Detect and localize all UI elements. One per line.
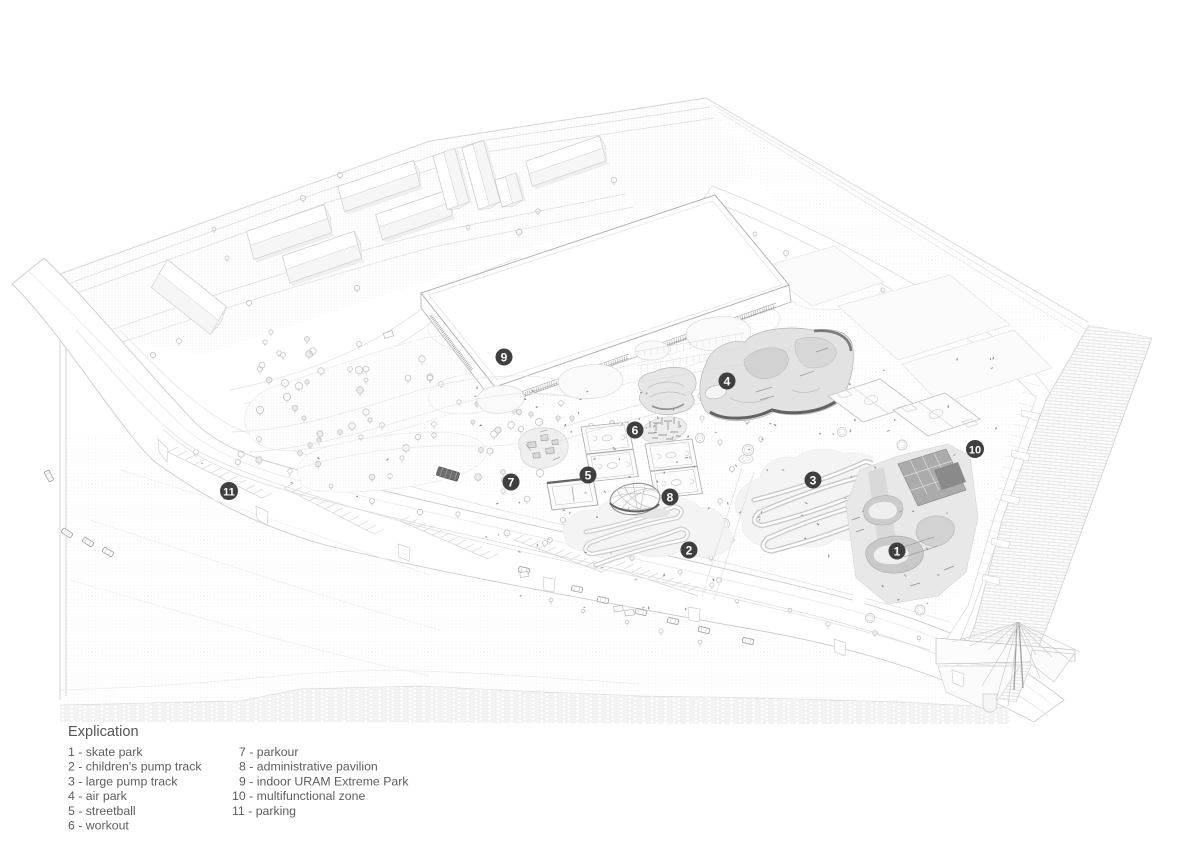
svg-text:7 - parkour: 7 - parkour [239, 745, 298, 759]
svg-text:4 - air park: 4 - air park [68, 789, 128, 803]
svg-text:5: 5 [585, 469, 592, 483]
svg-text:4: 4 [724, 375, 731, 389]
svg-text:7: 7 [508, 476, 515, 490]
svg-text:2: 2 [686, 544, 693, 558]
svg-text:11: 11 [223, 487, 235, 499]
svg-text:10 - multifunctional zone: 10 - multifunctional zone [232, 789, 365, 803]
svg-text:9: 9 [501, 351, 508, 365]
svg-text:9 - indoor URAM Extreme Park: 9 - indoor URAM Extreme Park [239, 774, 409, 788]
svg-text:3: 3 [810, 474, 817, 488]
svg-text:1: 1 [894, 545, 901, 559]
svg-text:1 - skate park: 1 - skate park [68, 745, 143, 759]
svg-text:5 - streetball: 5 - streetball [68, 804, 136, 818]
svg-text:Explication: Explication [68, 724, 139, 740]
svg-text:6 - workout: 6 - workout [68, 819, 129, 833]
svg-text:6: 6 [632, 424, 639, 438]
svg-text:10: 10 [969, 445, 981, 457]
svg-text:3 - large pump track: 3 - large pump track [68, 774, 178, 788]
svg-text:11 - parking: 11 - parking [232, 804, 296, 818]
svg-text:2 - children's pump track: 2 - children's pump track [68, 760, 202, 774]
svg-text:8 - administrative pavilion: 8 - administrative pavilion [239, 760, 378, 774]
svg-text:8: 8 [667, 491, 674, 505]
